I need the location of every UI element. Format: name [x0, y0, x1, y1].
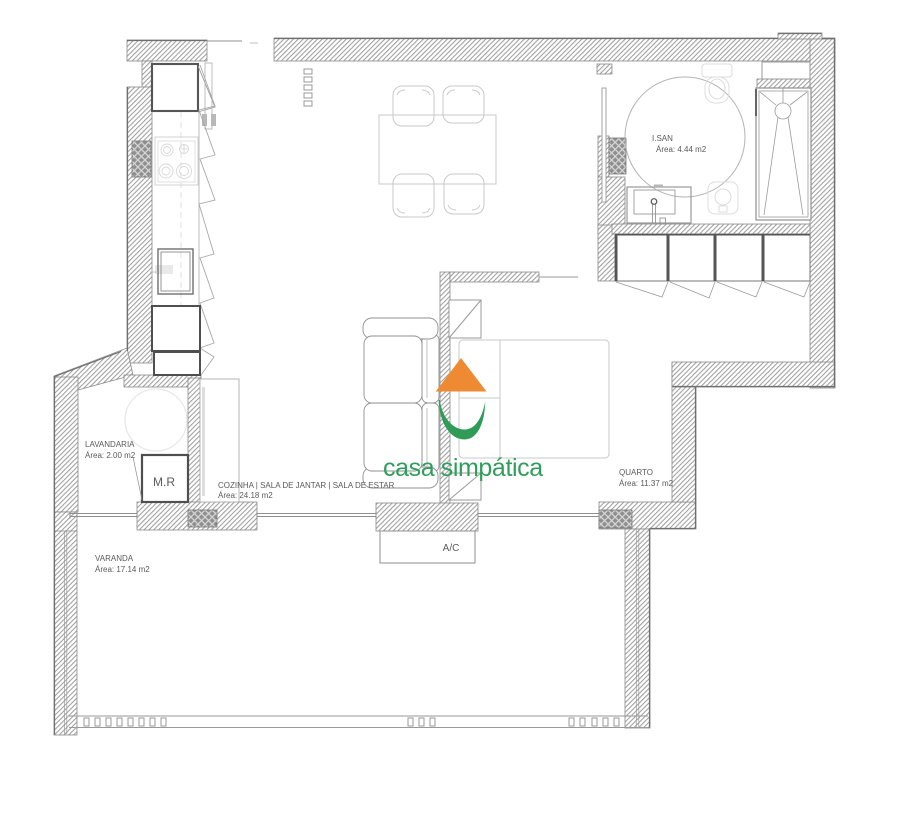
svg-text:QUARTO: QUARTO — [619, 468, 653, 477]
svg-text:VARANDA: VARANDA — [95, 554, 134, 563]
svg-text:Área: 24.18 m2: Área: 24.18 m2 — [218, 491, 273, 500]
svg-text:I.SAN: I.SAN — [652, 134, 673, 143]
svg-text:COZINHA | SALA DE JANTAR | SAL: COZINHA | SALA DE JANTAR | SALA DE ESTAR — [218, 481, 395, 490]
svg-text:LAVANDARIA: LAVANDARIA — [85, 440, 135, 449]
svg-text:Área: 4.44 m2: Área: 4.44 m2 — [656, 145, 707, 154]
svg-text:Área: 11.37 m2: Área: 11.37 m2 — [619, 479, 674, 488]
svg-text:M.R: M.R — [153, 475, 175, 489]
svg-text:A/C: A/C — [443, 543, 460, 554]
svg-text:casa simpática: casa simpática — [383, 454, 543, 482]
svg-text:Área: 2.00 m2: Área: 2.00 m2 — [85, 451, 136, 460]
svg-text:Área: 17.14 m2: Área: 17.14 m2 — [95, 565, 150, 574]
